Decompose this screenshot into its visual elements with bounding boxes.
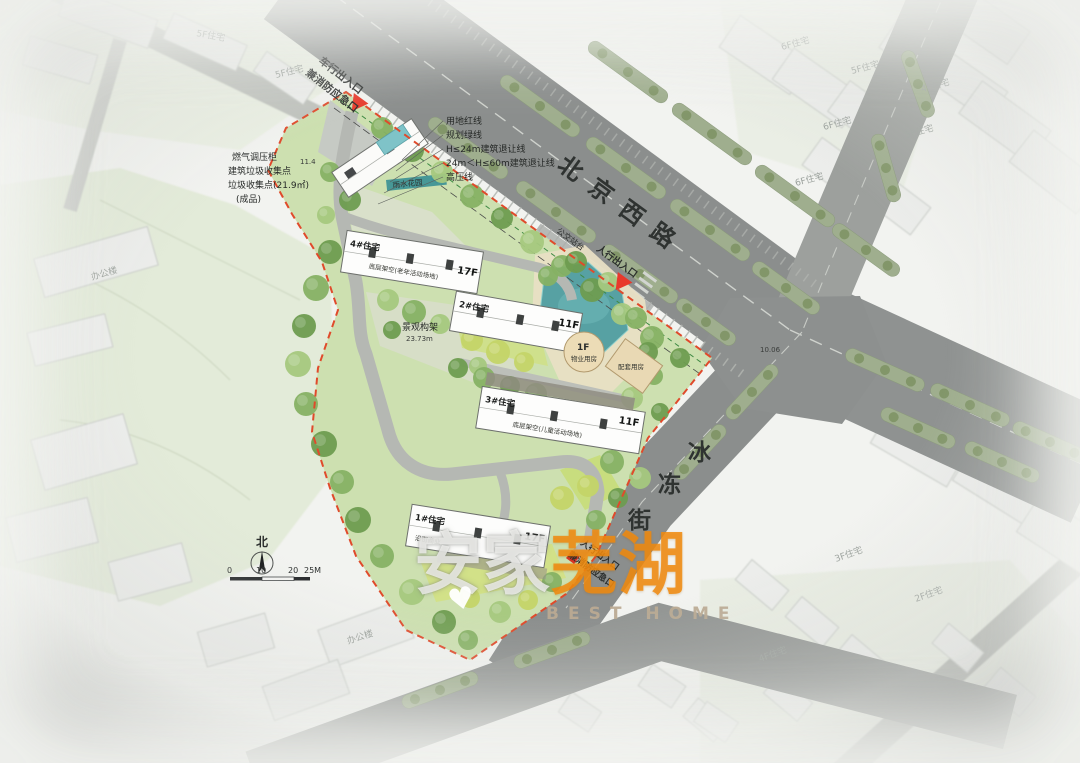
tree-highlight [402, 582, 414, 594]
utility-note-2: 垃圾收集点(21.9㎡) [228, 179, 309, 191]
setback-line-label-2: H≤24m建筑退让线 [446, 143, 526, 155]
tree-highlight [476, 370, 486, 380]
setback-line-label-0: 用地红线 [446, 115, 482, 127]
tree-highlight [288, 354, 300, 366]
utility-note-1: 建筑垃圾收集点 [228, 165, 291, 177]
scale-20: 20 [288, 566, 298, 575]
tree-highlight [554, 258, 564, 268]
tree-highlight [348, 510, 360, 522]
junction-elevation: 10.06 [760, 346, 781, 354]
tree-highlight [463, 591, 472, 600]
tree-highlight [435, 613, 446, 624]
tree-highlight [314, 434, 326, 446]
tree-highlight [673, 351, 682, 360]
round-amenity-note: 物业用房 [571, 354, 597, 363]
north-label: 北 [256, 534, 268, 549]
pergola-elevation: 23.73m [406, 335, 433, 343]
bingdong-char-2: 冻 [658, 471, 681, 498]
tree-highlight [405, 303, 416, 314]
round-amenity-building: 1F 物业用房 [564, 332, 604, 372]
tree-highlight [321, 243, 332, 254]
tree-highlight [553, 489, 564, 500]
scale-10: 10 [256, 566, 266, 575]
tree-highlight [374, 120, 384, 130]
tree-highlight [611, 491, 620, 500]
tree-highlight [603, 453, 614, 464]
tree-highlight [489, 343, 500, 354]
bingdong-char-1: 冰 [688, 440, 712, 466]
tree-highlight [471, 359, 479, 367]
tree-highlight [589, 513, 598, 522]
median-planter [585, 38, 670, 105]
tree-highlight [306, 278, 318, 290]
tree-highlight [653, 405, 661, 413]
tree-highlight [295, 317, 306, 328]
tree-highlight [628, 310, 638, 320]
setback-line-label-3: 24m＜H≤60m建筑退让线 [446, 157, 555, 169]
tree-highlight [461, 633, 470, 642]
tree-highlight [323, 165, 332, 174]
utility-note-3: (成品) [236, 193, 261, 205]
pergola-label: 景观构架 [402, 321, 438, 333]
context-building [638, 664, 686, 708]
boundary-elevation-note: 11.4 [300, 158, 316, 166]
tree-highlight [463, 187, 474, 198]
scale-0: 0 [227, 566, 232, 575]
tree-highlight [643, 329, 654, 340]
tree-highlight [319, 208, 327, 216]
context-label-9: 3F住宅 [833, 544, 864, 565]
site-plan-canvas: 雨水花园 4#住宅 17F 底层架空(老年活动场地) [0, 0, 1080, 763]
utility-note-0: 燃气调压柜 [232, 151, 277, 163]
tree-highlight [373, 547, 384, 558]
tree-highlight [523, 233, 534, 244]
context-building [197, 613, 274, 667]
tree-highlight [451, 361, 460, 370]
context-building [262, 659, 349, 720]
tree-highlight [583, 281, 594, 292]
tree-highlight [492, 604, 502, 614]
tree-highlight [297, 395, 308, 406]
tree-highlight [380, 292, 390, 302]
tree-highlight [541, 269, 550, 278]
round-amenity-label: 1F [577, 343, 589, 353]
tree-highlight [614, 306, 624, 316]
tree-highlight [385, 323, 393, 331]
tree-highlight [580, 478, 590, 488]
tree-highlight [521, 593, 530, 602]
tree-highlight [517, 355, 526, 364]
setback-line-label-1: 规划绿线 [446, 129, 482, 141]
context-building [558, 692, 601, 732]
tree-highlight [333, 473, 344, 484]
context-label-6: 6F住宅 [794, 170, 825, 189]
setback-line-label-4: 高压线 [446, 171, 473, 183]
master-plan-svg: 雨水花园 4#住宅 17F 底层架空(老年活动场地) [0, 0, 1080, 763]
east-amenity-note: 配套用房 [618, 362, 644, 371]
bingdong-char-3: 街 [627, 507, 651, 534]
tree-highlight [494, 210, 504, 220]
scale-25m: 25M [304, 566, 321, 575]
